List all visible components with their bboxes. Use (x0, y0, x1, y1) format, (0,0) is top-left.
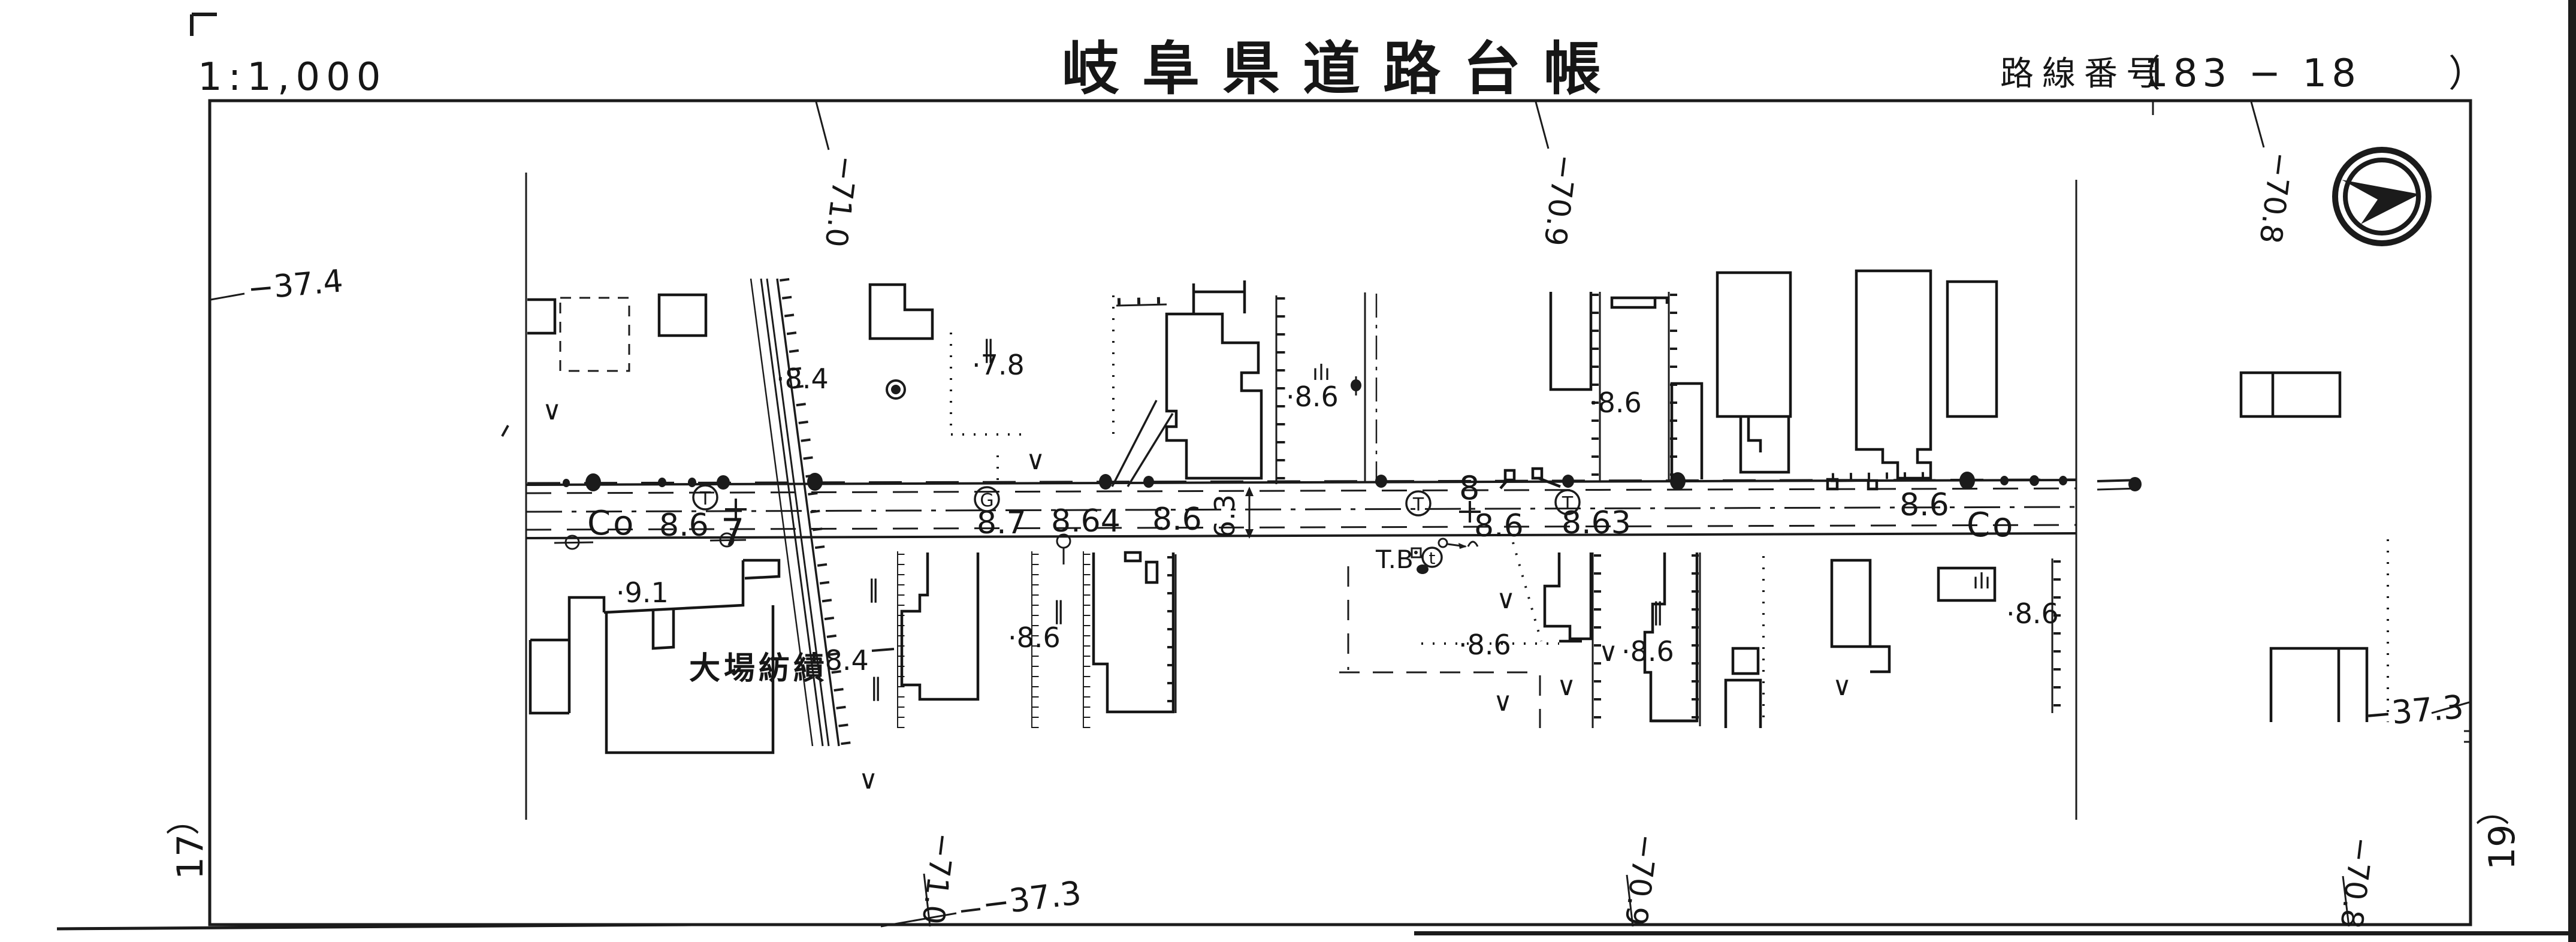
grid-label-bottom-3: −70.8 (2333, 835, 2379, 931)
spot-elevation: ·8.4 (776, 363, 829, 395)
scale-label: 1:1,000 (198, 55, 387, 99)
match-lines (526, 173, 2076, 820)
grass-symbol: ılı (1312, 361, 1330, 385)
spot-elevation: ·8.6 (2006, 597, 2059, 630)
north-arrow-icon (2335, 150, 2429, 243)
page-title: 岐阜県道路台帳 (1062, 35, 1624, 102)
field-symbol: ∨ (1496, 584, 1515, 615)
route-close-paren: ） (2448, 52, 2486, 95)
gas-valve-g: G (980, 490, 993, 511)
grid-label-right: −37.3 (2363, 688, 2465, 734)
spot-elevation: ·7.8 (972, 349, 1025, 381)
double-bar-symbol: ‖ (1652, 598, 1664, 626)
field-symbol: ∨ (1557, 671, 1576, 702)
telephone-pole-icon: T (1556, 490, 1580, 514)
station-number-7: 7 (721, 511, 744, 554)
surface-label-right: Co (1967, 506, 2015, 545)
width-dimension-arrow (1245, 487, 1254, 539)
width-value-3: 8.64 (1051, 503, 1121, 539)
route-number: 183 − 18 (2144, 52, 2361, 96)
field-symbol: ∨ (1026, 445, 1045, 476)
benchmark-tb: T.B t (1375, 539, 1478, 574)
field-symbol: ∨ (859, 765, 878, 795)
grid-label-left: −37.4 (246, 263, 345, 307)
factory-label: 大場紡績 (689, 651, 828, 687)
grass-symbol: ılı (1973, 569, 1991, 594)
width-value-1: 8.6 (659, 508, 709, 544)
grid-label-top-1: −71.0 (818, 154, 863, 249)
width-dimension-value: 6.3 (1209, 494, 1241, 538)
telephone-pole-icon: T (693, 485, 717, 509)
spot-elevation: ·8.6 (1621, 635, 1674, 668)
map-sheet: 1:1,000 岐阜県道路台帳 路線番号 （ 183 − 18 ） −71.0 … (0, 0, 2576, 942)
grid-label-top-2: −70.9 (1537, 153, 1583, 248)
double-bar-symbol: ‖ (868, 575, 880, 603)
telephone-pole-t: T (1562, 493, 1574, 514)
right-sheet-paren: （ (2471, 792, 2510, 826)
circled-kanji-symbol-icon (887, 381, 905, 398)
telephone-pole-icon: T (1406, 491, 1430, 515)
benchmark-label: T.B (1375, 545, 1414, 574)
telephone-pole-t: T (699, 488, 711, 509)
double-bar-symbol: ‖ (1053, 597, 1065, 624)
header: 1:1,000 岐阜県道路台帳 路線番号 （ 183 − 18 ） (198, 35, 2486, 102)
spot-elevation: ·8.6 (1286, 381, 1339, 413)
field-symbol: ∨ (1832, 671, 1852, 702)
scan-artifacts (57, 0, 2576, 942)
benchmark-t: t (1429, 548, 1436, 568)
spot-elevation: ·8.6 (1589, 387, 1642, 419)
field-symbol: ∨ (1493, 687, 1512, 717)
grid-label-bottom-2: −70.9 (1618, 832, 1663, 928)
double-bar-symbol: ‖ (870, 674, 882, 701)
grid-label-bottom-diagonal: −37.3 (980, 874, 1083, 923)
width-value-7: 8.6 (1899, 487, 1949, 523)
road: Co 8.6 7 8.7 8.64 8.6 6.3 8 8.6 8.63 8.6… (526, 469, 2139, 554)
station-number-8: 8 (1459, 469, 1479, 507)
spot-elevation: ·8.6 (1458, 629, 1511, 661)
field-symbol: ∨ (1599, 637, 1618, 668)
spot-elevation: ·8.6 (1008, 621, 1061, 654)
right-sheet-number: 19 (2481, 825, 2523, 870)
spot-elevation: ·9.1 (616, 576, 669, 609)
width-value-4: 8.6 (1152, 502, 1202, 538)
left-sheet-number: 17 (170, 834, 212, 880)
surface-label-left: Co (587, 504, 636, 543)
grid-label-bottom-1: −71.0 (915, 831, 961, 926)
map-frame (210, 101, 2471, 925)
sheet-adjacency-numbers: （ 17 （ 19 (161, 792, 2523, 880)
width-value-5: 8.6 (1474, 508, 1524, 544)
field-symbol: ∨ (542, 395, 561, 426)
grid-label-top-3: −70.8 (2252, 150, 2298, 246)
road-ledger-map: 1:1,000 岐阜県道路台帳 路線番号 （ 183 − 18 ） −71.0 … (0, 0, 2576, 942)
telephone-pole-t: T (1412, 494, 1424, 515)
spot-elevation: ·8.4 (816, 644, 869, 677)
double-bar-symbol: ‖ (983, 336, 995, 363)
grid-ticks: −71.0 −70.9 −70.8 −71.0 −70.9 −70.8 −37.… (211, 102, 2469, 931)
gas-valve-icon: G (975, 487, 999, 511)
left-sheet-paren: （ (161, 802, 200, 835)
